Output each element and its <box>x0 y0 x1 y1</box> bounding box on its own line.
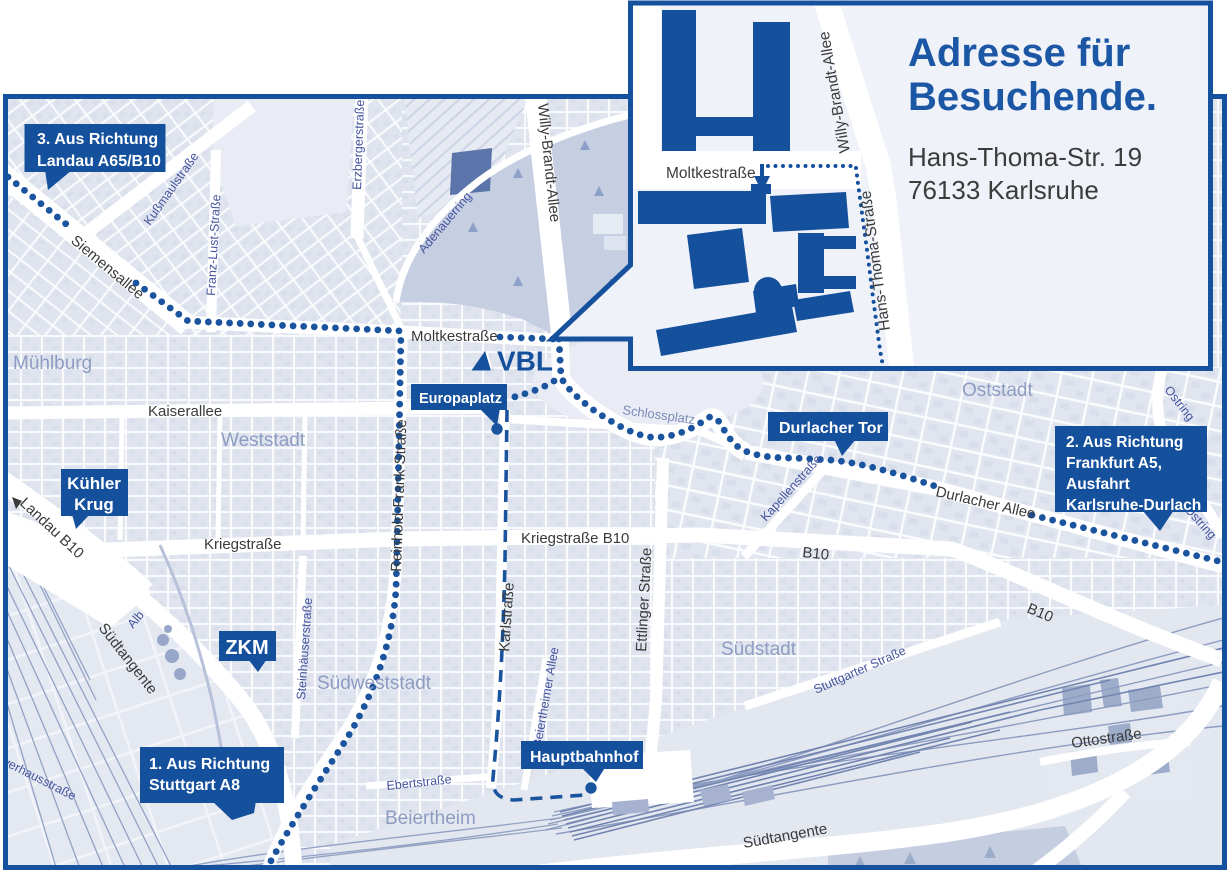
svg-text:ZKM: ZKM <box>225 637 268 659</box>
svg-text:1. Aus Richtung: 1. Aus Richtung <box>149 756 270 773</box>
svg-text:Kühler: Kühler <box>67 474 121 493</box>
svg-text:Moltkestraße: Moltkestraße <box>411 328 498 345</box>
svg-text:Mühlburg: Mühlburg <box>13 353 92 374</box>
svg-text:Südstadt: Südstadt <box>721 639 797 660</box>
svg-text:Adresse für: Adresse für <box>908 31 1130 75</box>
svg-text:Moltkestraße: Moltkestraße <box>666 165 756 182</box>
svg-text:Weststadt: Weststadt <box>221 430 306 451</box>
svg-text:Durlacher Tor: Durlacher Tor <box>779 420 883 437</box>
svg-text:3. Aus Richtung: 3. Aus Richtung <box>37 131 158 148</box>
svg-text:Europaplatz: Europaplatz <box>419 391 502 407</box>
svg-text:Hauptbahnhof: Hauptbahnhof <box>530 749 639 766</box>
svg-text:Südweststadt: Südweststadt <box>317 673 432 694</box>
svg-text:Oststadt: Oststadt <box>962 380 1033 401</box>
svg-text:76133 Karlsruhe: 76133 Karlsruhe <box>908 175 1099 205</box>
svg-text:Kaiserallee: Kaiserallee <box>148 403 222 420</box>
svg-text:Kriegstraße: Kriegstraße <box>204 536 282 553</box>
svg-text:VBL: VBL <box>497 346 553 377</box>
svg-text:B10: B10 <box>802 544 830 564</box>
svg-text:Landau A65/B10: Landau A65/B10 <box>37 153 161 170</box>
svg-text:Frankfurt A5,: Frankfurt A5, <box>1066 455 1162 472</box>
svg-text:Stuttgart A8: Stuttgart A8 <box>149 777 240 794</box>
svg-text:Beiertheim: Beiertheim <box>385 808 476 829</box>
svg-text:Kriegstraße B10: Kriegstraße B10 <box>521 530 629 547</box>
svg-text:Hans-Thoma-Str. 19: Hans-Thoma-Str. 19 <box>908 142 1142 172</box>
svg-text:Ausfahrt: Ausfahrt <box>1066 476 1130 493</box>
svg-text:Karlsruhe-Durlach: Karlsruhe-Durlach <box>1066 497 1201 514</box>
svg-text:2. Aus Richtung: 2. Aus Richtung <box>1066 434 1183 451</box>
svg-text:Krug: Krug <box>74 495 114 514</box>
svg-text:Besuchende.: Besuchende. <box>908 75 1157 119</box>
